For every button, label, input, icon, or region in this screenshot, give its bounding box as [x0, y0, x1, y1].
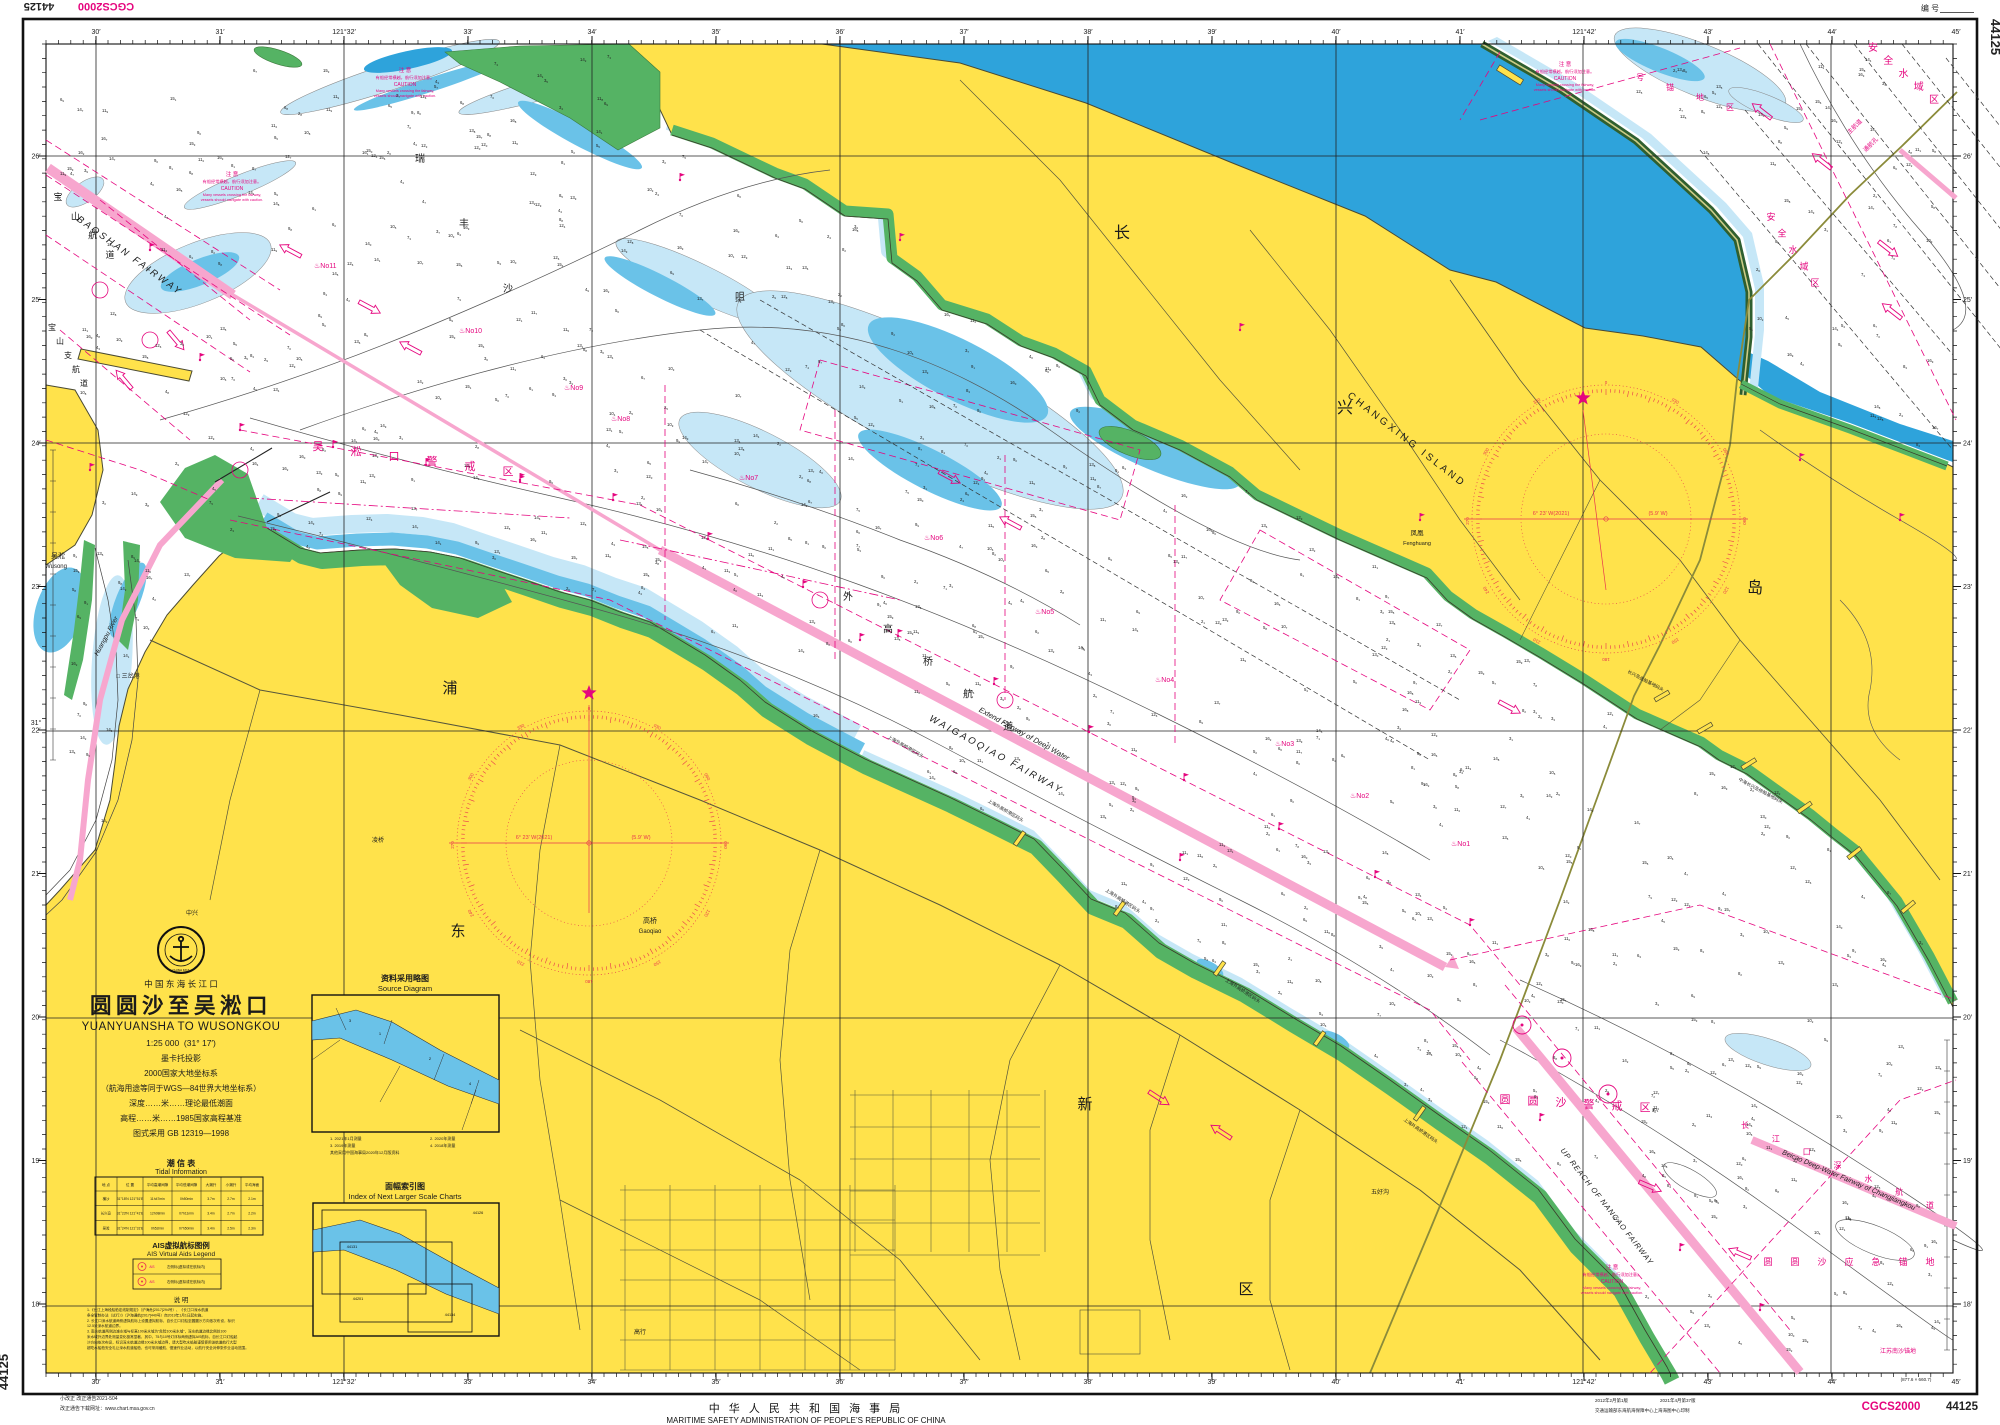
svg-text:♨No5: ♨No5	[1035, 608, 1054, 616]
svg-text:2. 长江口深水航道两侧虚拟航标上设置虚拟航标，自长江口灯船: 2. 长江口深水航道两侧虚拟航标上设置虚拟航标，自长江口灯船至圆圆沙方向依次布设…	[87, 1318, 235, 1323]
svg-text:注 意: 注 意	[226, 170, 239, 178]
svg-text:2.3m: 2.3m	[248, 1226, 256, 1230]
svg-text:121°32′: 121°32′	[332, 28, 356, 36]
svg-text:沙: 沙	[1556, 1096, 1567, 1109]
svg-text:121°42′: 121°42′	[1572, 28, 1596, 36]
svg-text:26′: 26′	[31, 154, 41, 161]
svg-text:MARITIME SAFETY ADMINISTRATI: MARITIME SAFETY ADMINISTRATION OF PEOPLE…	[666, 1416, 946, 1425]
svg-text:深度……米……理论最低潮面: 深度……米……理论最低潮面	[129, 1098, 233, 1108]
svg-text:3. 南水航道两侧边滩水域与标高100米水域为“危险100米: 3. 南水航道两侧边滩水域与标高100米水域为“危险100米水域”，深水航道边缘…	[87, 1329, 226, 1334]
svg-text:沙: 沙	[1817, 1257, 1826, 1267]
svg-text:左侧标(虚拟或在航标内): 左侧标(虚拟或在航标内)	[167, 1264, 205, 1269]
svg-text:2.1m: 2.1m	[248, 1197, 256, 1201]
svg-text:♨No6: ♨No6	[924, 534, 943, 542]
svg-text:24′: 24′	[31, 441, 41, 448]
svg-text:12.5米深水航道边界。: 12.5米深水航道边界。	[87, 1323, 123, 1328]
svg-text:山: 山	[71, 211, 80, 221]
svg-text:07h50min: 07h50min	[179, 1226, 194, 1230]
svg-text:12h08min: 12h08min	[150, 1212, 165, 1216]
svg-text:中 华 人 民 共 和 国 海 事 局: 中 华 人 民 共 和 国 海 事 局	[709, 1401, 904, 1415]
svg-text:全: 全	[1777, 228, 1786, 239]
svg-text:45′: 45′	[1951, 1379, 1961, 1386]
svg-text:18′: 18′	[1963, 1302, 1973, 1309]
svg-text:31′: 31′	[215, 29, 225, 36]
svg-text:新: 新	[1077, 1096, 1092, 1113]
svg-text:35′: 35′	[711, 29, 721, 36]
svg-text:CHINA MSA: CHINA MSA	[172, 969, 190, 973]
svg-text:其他采用中国海事局2020年12月版资料: 其他采用中国海事局2020年12月版资料	[330, 1149, 399, 1155]
svg-text:19′: 19′	[1963, 1158, 1973, 1165]
svg-text:31°24′N 121°31′E: 31°24′N 121°31′E	[117, 1226, 144, 1230]
svg-text:30′: 30′	[91, 1379, 101, 1386]
svg-text:44′: 44′	[1827, 1379, 1837, 1386]
svg-text:1.《长江上海段船舶定线制规定》（沪海危[2017]294号: 1.《长江上海段船舶定线制规定》（沪海危[2017]294号）、《长江口深水航道	[87, 1307, 209, 1312]
svg-text:AIS: AIS	[149, 1265, 154, 1269]
svg-text:31°18′N 121°51′E: 31°18′N 121°51′E	[117, 1197, 144, 1201]
svg-text:2000国家大地坐标系: 2000国家大地坐标系	[144, 1068, 218, 1078]
svg-text:岛: 岛	[1747, 579, 1763, 597]
svg-text:30′: 30′	[91, 29, 101, 36]
svg-text:区: 区	[1810, 278, 1819, 288]
svg-text:(877.6 × 660.7): (877.6 × 660.7)	[1901, 1377, 1932, 1382]
svg-text:0h50min: 0h50min	[180, 1197, 193, 1201]
svg-text:33′: 33′	[463, 1379, 473, 1386]
svg-text:(5.9′ W): (5.9′ W)	[1648, 511, 1667, 517]
svg-text:21′: 21′	[1963, 871, 1973, 878]
svg-text:26′: 26′	[1963, 154, 1973, 161]
svg-text:米水域外边界处测量变化极常显著，其中，75与10号灯浮标两侧: 米水域外边界处测量变化极常显著，其中，75与10号灯浮标两侧虚拟AIS航标，自长…	[87, 1334, 238, 1339]
svg-text:2012年2月第1版: 2012年2月第1版	[1595, 1397, 1629, 1404]
svg-text:平均高潮间隙: 平均高潮间隙	[147, 1182, 169, 1187]
svg-text:墨卡托投影: 墨卡托投影	[161, 1053, 201, 1063]
svg-text:vessels should navigate with c: vessels should navigate with caution.	[201, 198, 263, 202]
svg-text:34′: 34′	[587, 29, 597, 36]
svg-text:2.7m: 2.7m	[227, 1197, 235, 1201]
svg-text:3.4m: 3.4m	[207, 1212, 215, 1216]
svg-text:小改正 改正通告2021-504: 小改正 改正通告2021-504	[60, 1395, 118, 1402]
svg-text:有船经常横越，航行须加注意。: 有船经常横越，航行须加注意。	[376, 74, 435, 81]
svg-text:44125: 44125	[0, 1354, 11, 1390]
svg-text:6° 23′ W(2021): 6° 23′ W(2021)	[516, 835, 553, 841]
svg-text:33′: 33′	[463, 29, 473, 36]
svg-text:大潮升: 大潮升	[206, 1182, 217, 1187]
svg-text:横沙: 横沙	[103, 1196, 110, 1201]
svg-text:37′: 37′	[959, 29, 969, 36]
svg-text:应: 应	[1844, 1256, 1853, 1267]
svg-text:安: 安	[1766, 211, 1775, 222]
svg-text:中 国 东 海 长 江 口: 中 国 东 海 长 江 口	[144, 979, 218, 989]
svg-text:44125: 44125	[24, 0, 55, 12]
svg-text:23′: 23′	[31, 584, 41, 591]
svg-text:道: 道	[1926, 1200, 1934, 1210]
svg-text:兴: 兴	[1337, 399, 1353, 417]
svg-text:38′: 38′	[1083, 1379, 1093, 1386]
svg-text:Many vessels crossing the fair: Many vessels crossing the fairway,	[1536, 83, 1594, 87]
svg-text:改正通告下载网址：www.chart.msa.gov.cn: 改正通告下载网址：www.chart.msa.gov.cn	[60, 1405, 155, 1412]
svg-text:CGCS2000: CGCS2000	[78, 0, 134, 12]
svg-text:凤凰: 凤凰	[1411, 529, 1425, 537]
svg-text:区: 区	[1929, 94, 1939, 106]
svg-text:交通运输部东海航海保障中心上海海图中心印制: 交通运输部东海航海保障中心上海海图中心印制	[1595, 1407, 1690, 1414]
svg-text:AIS: AIS	[149, 1280, 154, 1284]
svg-text:区: 区	[1640, 1102, 1651, 1114]
svg-text:宝: 宝	[53, 191, 62, 202]
svg-text:♨No4: ♨No4	[1155, 676, 1174, 684]
svg-text:圆: 圆	[1500, 1093, 1511, 1106]
svg-text:CAUTION: CAUTION	[394, 82, 417, 88]
svg-text:vessels should navigate with c: vessels should navigate with caution.	[374, 94, 436, 98]
svg-text:位 置: 位 置	[126, 1182, 135, 1187]
svg-text:♨No2: ♨No2	[1350, 792, 1369, 800]
svg-text:CAUTION: CAUTION	[1554, 76, 1577, 82]
svg-text:25′: 25′	[31, 297, 41, 304]
svg-text:有船经常横越，航行须加注意。: 有船经常横越，航行须加注意。	[1536, 68, 1595, 75]
svg-text:注 意: 注 意	[1559, 60, 1572, 68]
svg-text:Source Diagram: Source Diagram	[378, 984, 432, 993]
svg-text:3.4m: 3.4m	[207, 1226, 215, 1230]
svg-text:34′: 34′	[587, 1379, 597, 1386]
svg-text:44125: 44125	[1946, 1401, 1979, 1413]
svg-text:宝: 宝	[48, 322, 56, 332]
svg-text:23′: 23′	[1963, 584, 1973, 591]
svg-text:18′: 18′	[31, 1302, 41, 1309]
svg-text:35′: 35′	[711, 1379, 721, 1386]
svg-text:44201: 44201	[353, 1297, 364, 1301]
svg-text:♨No10: ♨No10	[459, 327, 482, 335]
svg-text:江苏南沙锚地: 江苏南沙锚地	[1880, 1347, 1916, 1355]
svg-text:vessels should navigate with c: vessels should navigate with caution.	[1581, 1291, 1643, 1295]
svg-text:CGCS2000: CGCS2000	[1862, 1401, 1921, 1413]
svg-text:高: 高	[883, 623, 893, 636]
svg-text:39′: 39′	[1207, 1379, 1217, 1386]
svg-text:面幅索引图: 面幅索引图	[385, 1181, 425, 1191]
svg-text:♨No7: ♨No7	[739, 474, 758, 482]
svg-text:警: 警	[427, 454, 438, 468]
svg-text:36′: 36′	[835, 1379, 845, 1386]
svg-text:20′: 20′	[31, 1015, 41, 1022]
svg-text:超吃水船舶安全礼让深水航道船舶，也可采用缓航、慢速作业活动，: 超吃水船舶安全礼让深水航道船舶，也可采用缓航、慢速作业活动，以航行安全对伸张作业…	[87, 1345, 249, 1350]
svg-text:东: 东	[450, 923, 465, 940]
svg-text:锚: 锚	[1898, 1256, 1907, 1267]
svg-text:圆: 圆	[1763, 1257, 1772, 1267]
svg-text:(5.9′ W): (5.9′ W)	[631, 835, 650, 841]
svg-text:编 号: 编 号	[1921, 3, 1939, 13]
svg-text:44′: 44′	[1827, 29, 1837, 36]
svg-text:山: 山	[56, 336, 64, 346]
svg-text:44131: 44131	[347, 1245, 358, 1249]
svg-text:区: 区	[503, 466, 514, 478]
svg-text:Gaoqiao: Gaoqiao	[639, 929, 662, 935]
svg-text:沙方向依次布设，标识深水航道边缘100米水域边界，请大型吃水: 沙方向依次布设，标识深水航道边缘100米水域边界，请大型吃水船舶谨慎使用该航道航…	[87, 1339, 237, 1344]
svg-text:11h47min: 11h47min	[150, 1197, 165, 1201]
svg-text:270: 270	[450, 841, 455, 849]
svg-text:道: 道	[1003, 720, 1013, 733]
svg-text:♨No1: ♨No1	[1451, 840, 1470, 848]
svg-text:AIS虚拟航标图例: AIS虚拟航标图例	[152, 1240, 210, 1250]
svg-text:有船经常横越，航行须加注意。: 有船经常横越，航行须加注意。	[203, 178, 262, 185]
svg-text:2.7m: 2.7m	[227, 1212, 235, 1216]
svg-text:号: 号	[1636, 73, 1644, 82]
svg-text:支: 支	[64, 350, 72, 360]
svg-text:090: 090	[723, 841, 728, 849]
svg-text:五好沟: 五好沟	[1371, 1188, 1389, 1196]
svg-text:3. 2019年测量: 3. 2019年测量	[330, 1142, 355, 1148]
svg-text:地: 地	[1696, 92, 1704, 102]
svg-text:□ 三岔港: □ 三岔港	[116, 672, 139, 680]
svg-text:2. 2020年测量: 2. 2020年测量	[430, 1135, 455, 1141]
svg-text:道: 道	[80, 378, 88, 388]
svg-text:CAUTION: CAUTION	[1601, 1279, 1624, 1285]
svg-text:水: 水	[1788, 244, 1797, 255]
svg-text:3.7m: 3.7m	[207, 1197, 215, 1201]
svg-text:圆圆沙至吴淞口: 圆圆沙至吴淞口	[90, 994, 272, 1018]
svg-text:20′: 20′	[1963, 1015, 1973, 1022]
svg-text:深: 深	[1834, 1161, 1842, 1170]
svg-text:水: 水	[1899, 68, 1909, 80]
svg-text:40′: 40′	[1331, 29, 1341, 36]
svg-text:吴淞: 吴淞	[51, 551, 65, 560]
svg-text:潮 信 表: 潮 信 表	[167, 1158, 196, 1168]
svg-text:41′: 41′	[1455, 1379, 1465, 1386]
svg-text:37′: 37′	[959, 1379, 969, 1386]
svg-text:高程……米……1985国家高程基准: 高程……米……1985国家高程基准	[120, 1113, 242, 1123]
svg-text:090: 090	[1742, 517, 1747, 525]
svg-text:浦: 浦	[442, 680, 457, 697]
svg-text:♨No11: ♨No11	[314, 262, 337, 270]
svg-text:图式采用 GB 12319—1998: 图式采用 GB 12319—1998	[133, 1128, 230, 1138]
svg-text:平均低潮间隙: 平均低潮间隙	[176, 1182, 198, 1187]
svg-text:Fenghuang: Fenghuang	[1403, 541, 1431, 547]
svg-text:域: 域	[1799, 261, 1808, 272]
svg-text:小潮升: 小潮升	[226, 1182, 237, 1187]
svg-text:39′: 39′	[1207, 29, 1217, 36]
svg-text:4. 2018年测量: 4. 2018年测量	[430, 1142, 455, 1148]
svg-text:Tidal Information: Tidal Information	[155, 1169, 207, 1176]
svg-text:vessels should navigate with c: vessels should navigate with caution.	[1534, 88, 1596, 92]
svg-text:瑞: 瑞	[415, 153, 425, 165]
svg-text:07h11min: 07h11min	[179, 1212, 194, 1216]
svg-text:长兴岛: 长兴岛	[101, 1211, 112, 1216]
svg-text:Index of Next Larger Scale Cha: Index of Next Larger Scale Charts	[349, 1192, 462, 1201]
svg-text:31′: 31′	[215, 1379, 225, 1386]
svg-text:38′: 38′	[1083, 29, 1093, 36]
svg-text:水: 水	[1864, 1173, 1872, 1183]
svg-text:吴淞: 吴淞	[103, 1225, 110, 1230]
svg-text:270: 270	[1465, 517, 1470, 525]
svg-text:中兴: 中兴	[186, 909, 198, 917]
svg-text:♨No9: ♨No9	[564, 384, 583, 392]
svg-text:凌桥: 凌桥	[372, 836, 384, 844]
svg-text:45′: 45′	[1951, 29, 1961, 36]
svg-text:长: 长	[1114, 224, 1130, 242]
svg-text:全: 全	[1883, 54, 1893, 67]
svg-text:域: 域	[1914, 80, 1924, 93]
svg-text:警: 警	[1584, 1097, 1595, 1111]
svg-text:有船经常横越，航行须加注意。: 有船经常横越，航行须加注意。	[1583, 1271, 1642, 1278]
svg-text:AIS Virtual Aids Legend: AIS Virtual Aids Legend	[147, 1251, 216, 1258]
svg-text:22′: 22′	[31, 728, 41, 735]
svg-text:43′: 43′	[1703, 1379, 1713, 1386]
svg-text:淞: 淞	[351, 445, 362, 458]
svg-text:安: 安	[1868, 41, 1878, 54]
svg-text:Many vessels crossing the fair: Many vessels crossing the fairway,	[376, 89, 434, 93]
svg-text:44125: 44125	[1988, 19, 2000, 55]
svg-text:1:25 000 (31° 17′): 1:25 000 (31° 17′)	[146, 1038, 216, 1048]
svg-text:区: 区	[1726, 103, 1734, 112]
svg-text:右侧标(虚拟或在航标内): 右侧标(虚拟或在航标内)	[167, 1279, 205, 1284]
svg-text:说 明: 说 明	[174, 1295, 189, 1304]
svg-text:0h52min: 0h52min	[151, 1226, 164, 1230]
svg-text:121°32′: 121°32′	[332, 1378, 356, 1386]
svg-text:21′: 21′	[31, 871, 41, 878]
svg-text:44134: 44134	[445, 1313, 456, 1317]
svg-text:（航海用途等同于WGS—84世界大地坐标系）: （航海用途等同于WGS—84世界大地坐标系）	[101, 1083, 261, 1093]
svg-text:口: 口	[389, 451, 400, 463]
svg-text:注 意: 注 意	[1606, 1263, 1619, 1271]
svg-text:地 点: 地 点	[102, 1182, 111, 1187]
svg-text:CAUTION: CAUTION	[221, 186, 244, 192]
svg-text:地: 地	[1925, 1256, 1934, 1267]
svg-text:区: 区	[1238, 1281, 1253, 1298]
svg-text:江: 江	[1772, 1134, 1780, 1143]
svg-text:121°42′: 121°42′	[1572, 1378, 1596, 1386]
svg-text:6° 23′ W(2021): 6° 23′ W(2021)	[1533, 511, 1570, 517]
svg-text:36′: 36′	[835, 29, 845, 36]
svg-text:1. 2021年1月测量: 1. 2021年1月测量	[330, 1135, 362, 1141]
svg-text:平均海面: 平均海面	[245, 1182, 260, 1187]
svg-text:2021年4月第37版: 2021年4月第37版	[1660, 1397, 1696, 1404]
svg-text:44126: 44126	[473, 1211, 484, 1215]
svg-text:YUANYUANSHA TO WUSONGKOU: YUANYUANSHA TO WUSONGKOU	[82, 1021, 281, 1033]
svg-text:资料采用略图: 资料采用略图	[381, 973, 429, 983]
svg-text:180: 180	[1602, 657, 1610, 662]
svg-text:注 意: 注 意	[399, 66, 412, 74]
svg-text:43′: 43′	[1703, 29, 1713, 36]
svg-text:航: 航	[72, 364, 80, 374]
svg-text:高行: 高行	[634, 1328, 646, 1336]
svg-text:19′: 19′	[31, 1158, 41, 1165]
svg-text:41′: 41′	[1455, 29, 1465, 36]
svg-text:圆: 圆	[1790, 1257, 1799, 1267]
svg-text:31°23′N 121°41′E: 31°23′N 121°41′E	[117, 1212, 144, 1216]
svg-text:22′: 22′	[1963, 728, 1973, 735]
svg-text:沙: 沙	[503, 283, 513, 295]
svg-text:180: 180	[585, 979, 593, 984]
svg-text:2.2m: 2.2m	[248, 1212, 256, 1216]
svg-text:高桥: 高桥	[643, 916, 657, 925]
svg-text:31°: 31°	[31, 719, 42, 727]
svg-text:Wusong: Wusong	[45, 564, 67, 570]
svg-text:锚: 锚	[1666, 82, 1674, 92]
svg-text:40′: 40′	[1331, 1379, 1341, 1386]
svg-text:2.5m: 2.5m	[227, 1226, 235, 1230]
svg-text:24′: 24′	[1963, 441, 1973, 448]
svg-text:航: 航	[1895, 1187, 1903, 1197]
svg-text:道: 道	[105, 249, 114, 260]
svg-text:Many vessels crossing the fair: Many vessels crossing the fairway,	[1583, 1286, 1641, 1290]
svg-text:条全管制办法（试行）》（沪海通航[2017]440号）自20: 条全管制办法（试行）》（沪海通航[2017]440号）自2019年1月1日起实施…	[87, 1312, 205, 1317]
